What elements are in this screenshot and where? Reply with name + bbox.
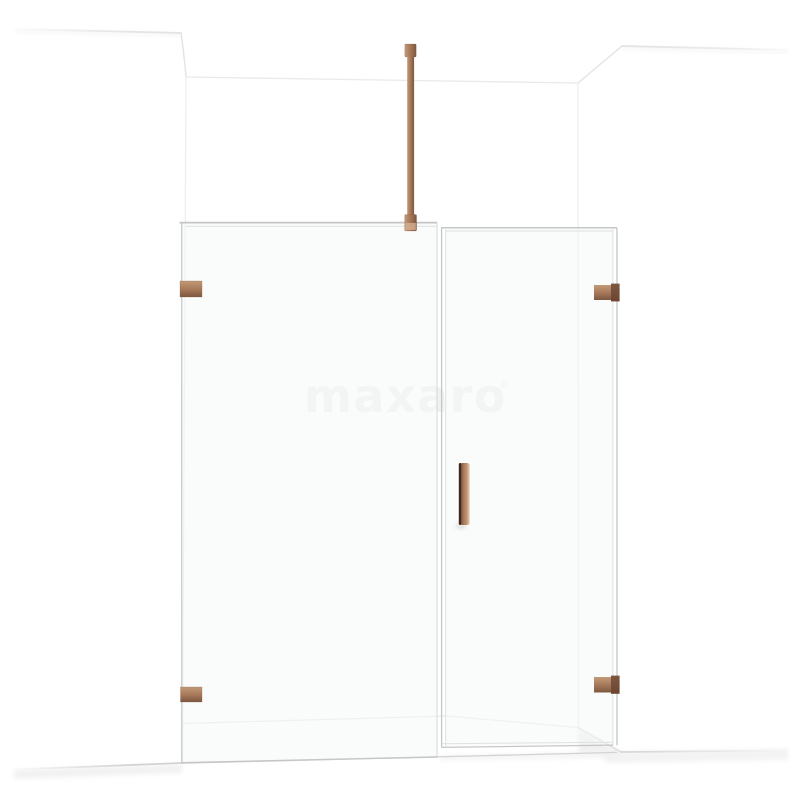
hinge-bottom-clamp [611,676,620,694]
ceiling-support-bar [405,44,417,231]
door-hinge-bottom-right [594,676,620,694]
handle-light-edge [467,464,469,525]
handle-dark-edge [459,463,462,525]
wall-bracket-top-left [180,281,202,297]
door-glass [446,229,613,746]
product-image: maxaro ® [0,0,800,800]
support-bar-connector-highlight [405,223,415,230]
wall-bracket-bottom-left [181,687,203,702]
support-bar-ceiling-cap [405,44,416,57]
support-bar-rod [407,57,414,216]
handle-body [461,463,467,525]
hinge-top-clamp [611,284,620,302]
hinge-bottom-plate [594,677,612,693]
fixed-glass-panel [180,223,438,763]
shower-enclosure-drawing: maxaro ® [0,0,800,800]
fixed-panel-glass [182,223,437,763]
left-wall-corner-top-line [181,33,186,77]
door-hinge-top-right [594,284,620,302]
right-wall-corner-top-line [578,46,622,83]
hinge-top-plate [594,285,612,300]
back-wall-top-line [186,77,578,83]
